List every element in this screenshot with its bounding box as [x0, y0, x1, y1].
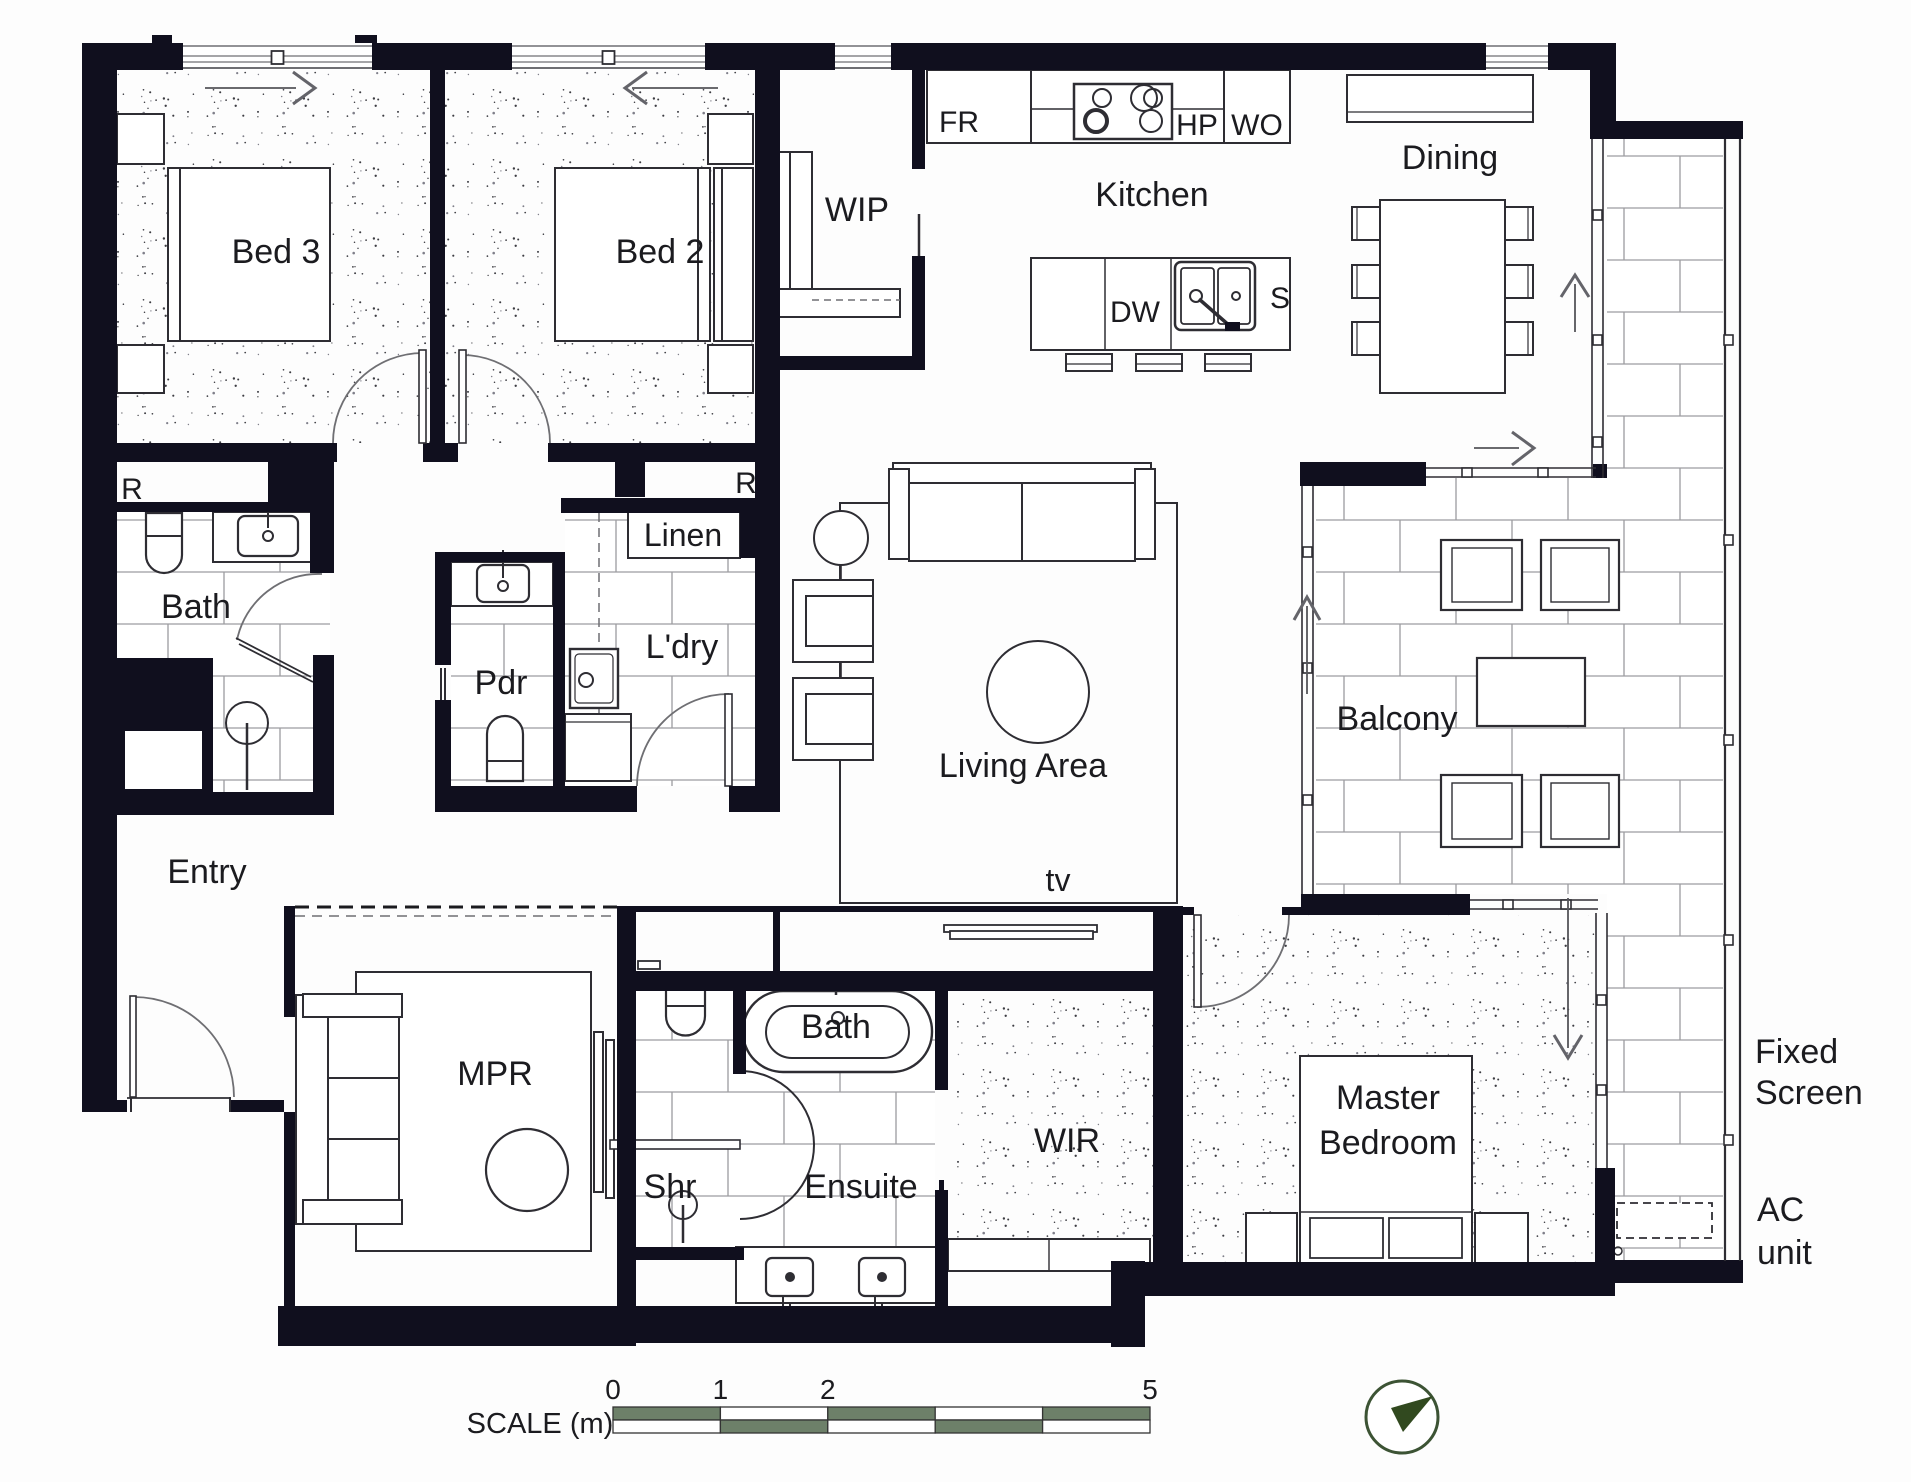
- svg-text:5: 5: [1142, 1374, 1158, 1405]
- svg-text:WO: WO: [1231, 109, 1283, 142]
- svg-text:Entry: Entry: [167, 853, 246, 891]
- svg-text:Bedroom: Bedroom: [1319, 1124, 1457, 1162]
- svg-text:Pdr: Pdr: [475, 664, 528, 702]
- svg-text:Living Area: Living Area: [939, 747, 1107, 785]
- svg-text:Fixed: Fixed: [1755, 1033, 1838, 1071]
- svg-text:AC: AC: [1757, 1191, 1804, 1229]
- svg-text:MPR: MPR: [457, 1055, 533, 1093]
- svg-text:L'dry: L'dry: [646, 628, 719, 666]
- svg-text:0: 0: [605, 1374, 621, 1405]
- svg-text:Bed 2: Bed 2: [616, 233, 705, 271]
- svg-text:WIP: WIP: [825, 191, 889, 229]
- svg-text:Linen: Linen: [644, 517, 722, 553]
- svg-text:SCALE (m): SCALE (m): [467, 1408, 614, 1440]
- svg-text:Master: Master: [1336, 1079, 1440, 1117]
- svg-text:Shr: Shr: [644, 1168, 697, 1206]
- svg-text:R: R: [735, 467, 757, 500]
- svg-text:S: S: [1270, 282, 1290, 315]
- svg-text:Balcony: Balcony: [1337, 700, 1458, 738]
- svg-text:R: R: [121, 473, 143, 506]
- svg-text:Dining: Dining: [1402, 139, 1498, 177]
- svg-text:FR: FR: [939, 106, 979, 139]
- svg-text:DW: DW: [1110, 296, 1161, 329]
- svg-text:WIR: WIR: [1034, 1122, 1100, 1160]
- svg-text:tv: tv: [1046, 862, 1071, 898]
- svg-text:Screen: Screen: [1755, 1074, 1863, 1112]
- svg-text:Ensuite: Ensuite: [804, 1168, 917, 1206]
- svg-text:HP: HP: [1176, 109, 1218, 142]
- svg-text:Bath: Bath: [801, 1008, 871, 1046]
- svg-text:Kitchen: Kitchen: [1095, 176, 1208, 214]
- svg-text:unit: unit: [1757, 1234, 1812, 1272]
- svg-text:1: 1: [713, 1374, 729, 1405]
- svg-text:2: 2: [820, 1374, 836, 1405]
- svg-text:Bath: Bath: [161, 588, 231, 626]
- svg-text:Bed 3: Bed 3: [232, 233, 321, 271]
